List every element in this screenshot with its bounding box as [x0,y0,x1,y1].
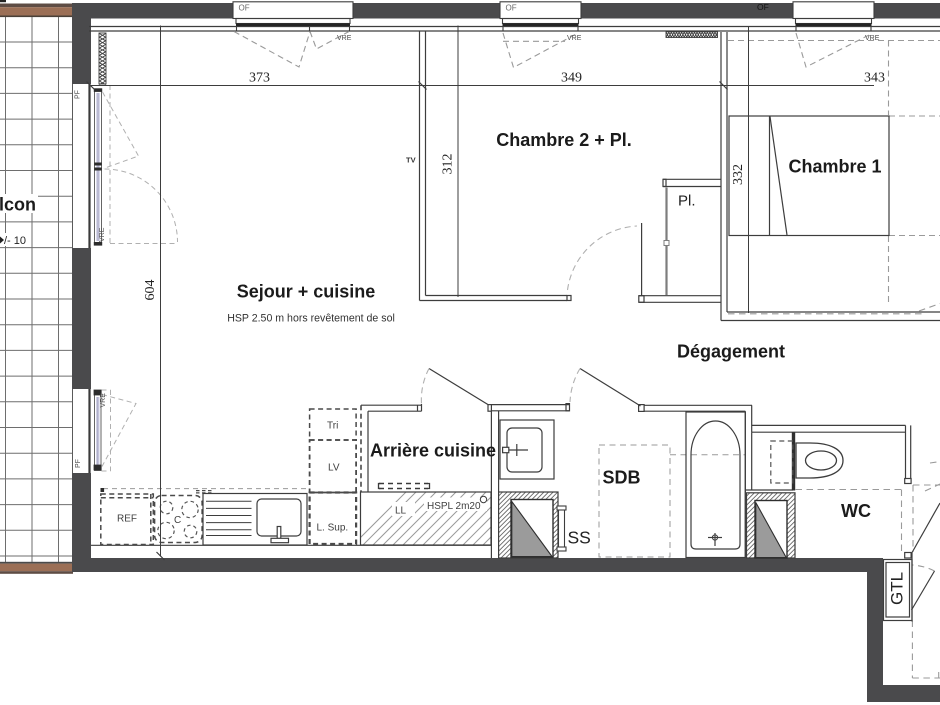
svg-text:Pl.: Pl. [678,193,696,210]
svg-text:VRE: VRE [567,35,582,42]
svg-text:Dégagement: Dégagement [677,342,785,362]
svg-text:332: 332 [731,164,746,185]
svg-text:SDB: SDB [602,468,640,488]
svg-text:349: 349 [561,71,582,86]
svg-text:GTL: GTL [888,572,907,605]
svg-text:PF: PF [75,90,82,99]
svg-text:Balcon: Balcon [0,195,36,215]
svg-text:OF: OF [506,4,517,13]
svg-text:Chambre 1: Chambre 1 [788,157,881,177]
svg-text:VRE: VRE [865,35,880,42]
svg-text:Tri: Tri [327,421,338,432]
svg-text:LL: LL [395,506,407,517]
svg-text:LV: LV [328,463,340,474]
svg-text:VRE: VRE [99,227,106,242]
svg-text:312: 312 [441,154,456,175]
svg-text:HSP 2.50 m hors revêtement de: HSP 2.50 m hors revêtement de sol [227,313,395,325]
svg-text:REF: REF [117,514,137,525]
svg-text:HSPL 2m20: HSPL 2m20 [427,501,481,512]
svg-text:TV: TV [406,155,416,164]
svg-text:L. Sup.: L. Sup. [317,523,349,534]
svg-text:VRE: VRE [337,35,352,42]
svg-text:OF: OF [239,4,250,13]
svg-text:Arrière cuisine: Arrière cuisine [370,441,496,461]
svg-text:VRE: VRE [100,393,107,408]
svg-text:OF: OF [757,2,769,12]
svg-text:343: 343 [864,71,885,86]
svg-text:Chambre 2 + Pl.: Chambre 2 + Pl. [496,130,632,150]
svg-text:WC: WC [841,501,871,521]
svg-text:C: C [174,515,181,526]
svg-text:/- 10: /- 10 [4,235,26,247]
svg-text:Sejour + cuisine: Sejour + cuisine [237,282,376,302]
svg-text:373: 373 [249,71,270,86]
svg-text:604: 604 [143,280,158,301]
svg-text:SS: SS [568,528,591,548]
svg-text:PF: PF [75,459,82,468]
